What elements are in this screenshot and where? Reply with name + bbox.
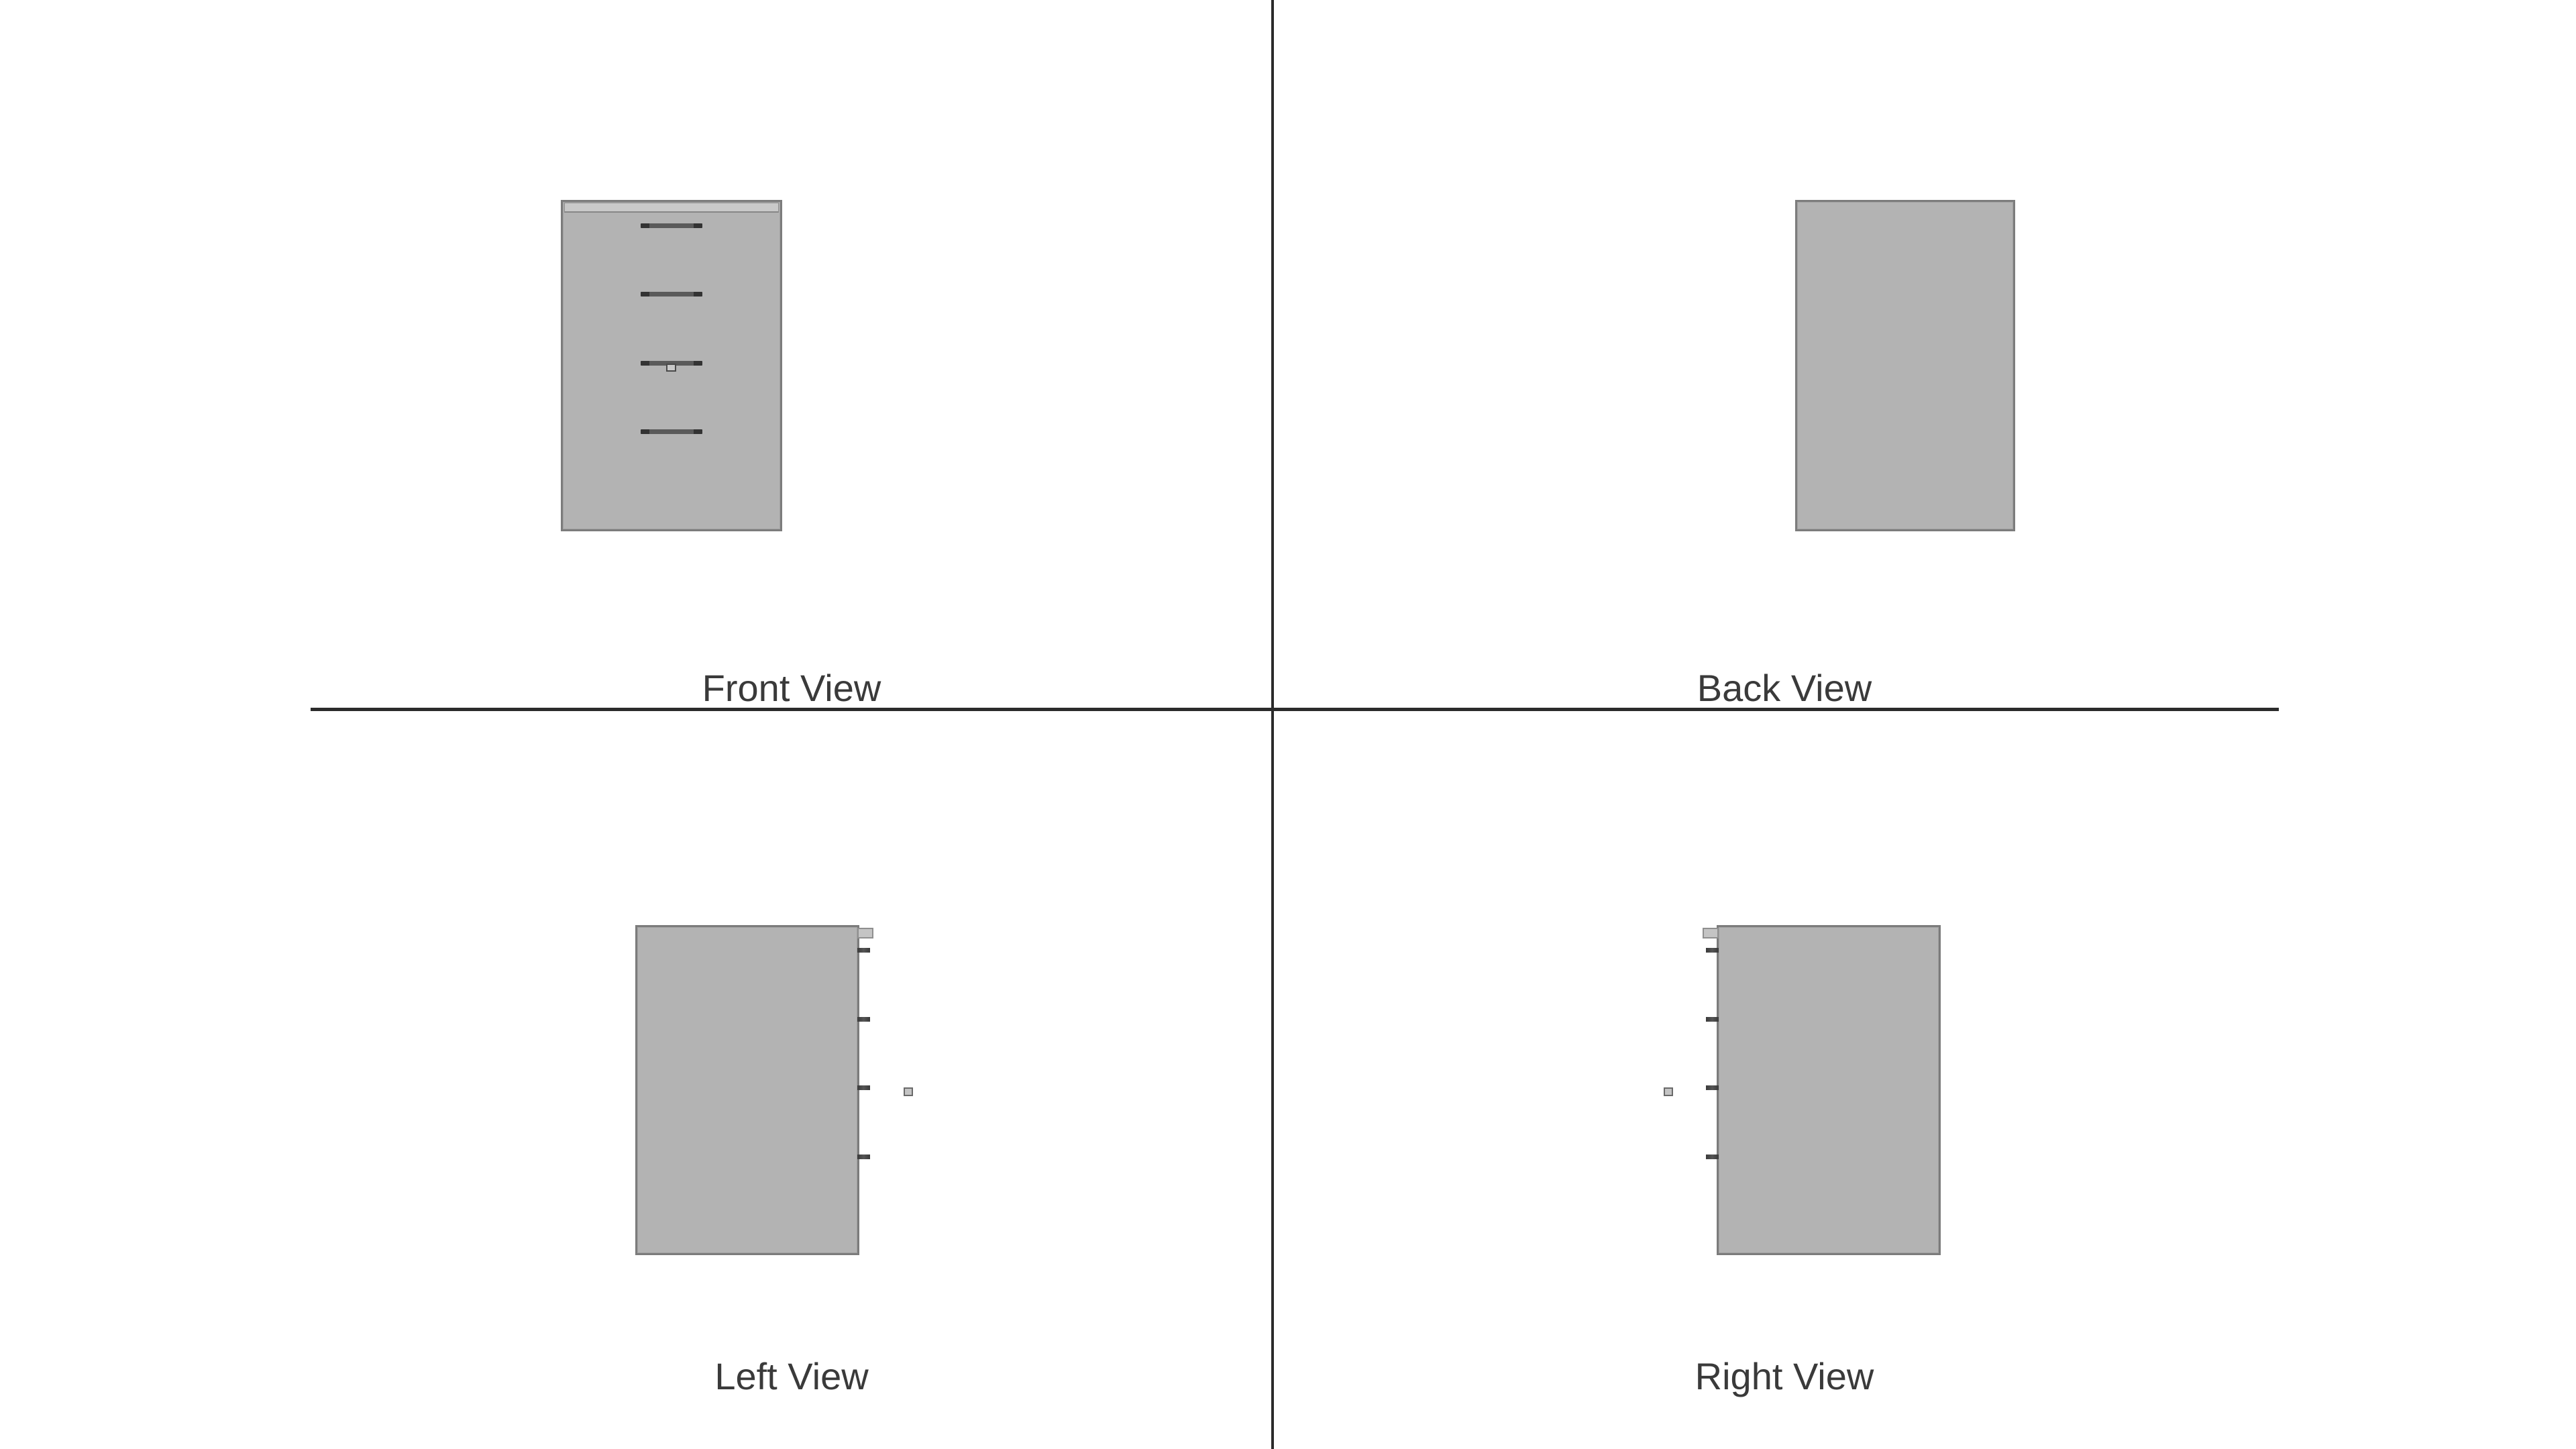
right-view-label: Right View: [1695, 1356, 1874, 1397]
back-view-cabinet-body: [1795, 200, 2015, 531]
back-view-label: Back View: [1697, 668, 1872, 708]
drawer-handle-1: [641, 223, 702, 228]
drawer-handle-4: [641, 429, 702, 434]
left-view-lock-square: [904, 1087, 913, 1096]
right-view-handle-tick-1: [1706, 948, 1719, 953]
left-view-handle-tick-4: [857, 1155, 870, 1159]
right-view-handle-tick-3: [1706, 1085, 1719, 1090]
right-view-lock-square: [1664, 1087, 1673, 1096]
right-view-cabinet-body: [1717, 925, 1941, 1255]
drawer-handle-2: [641, 292, 702, 297]
left-view-handle-tick-1: [857, 948, 870, 953]
left-view-handle-tick-2: [857, 1017, 870, 1022]
orthographic-views-canvas: Front View Back View Left View Right Vie…: [0, 0, 2576, 1449]
vertical-divider-line: [1271, 0, 1274, 1449]
left-view-top-strip-tab: [857, 928, 873, 938]
left-view-cabinet-body: [635, 925, 859, 1255]
left-view-label: Left View: [714, 1356, 868, 1397]
right-view-handle-tick-4: [1706, 1155, 1719, 1159]
right-view-top-strip-tab: [1703, 928, 1719, 938]
front-view-label: Front View: [702, 668, 881, 708]
front-view-top-strip: [564, 203, 779, 213]
horizontal-divider-line: [311, 708, 2279, 711]
left-view-handle-tick-3: [857, 1085, 870, 1090]
right-view-handle-tick-2: [1706, 1017, 1719, 1022]
drawer-lock-square: [666, 364, 676, 372]
